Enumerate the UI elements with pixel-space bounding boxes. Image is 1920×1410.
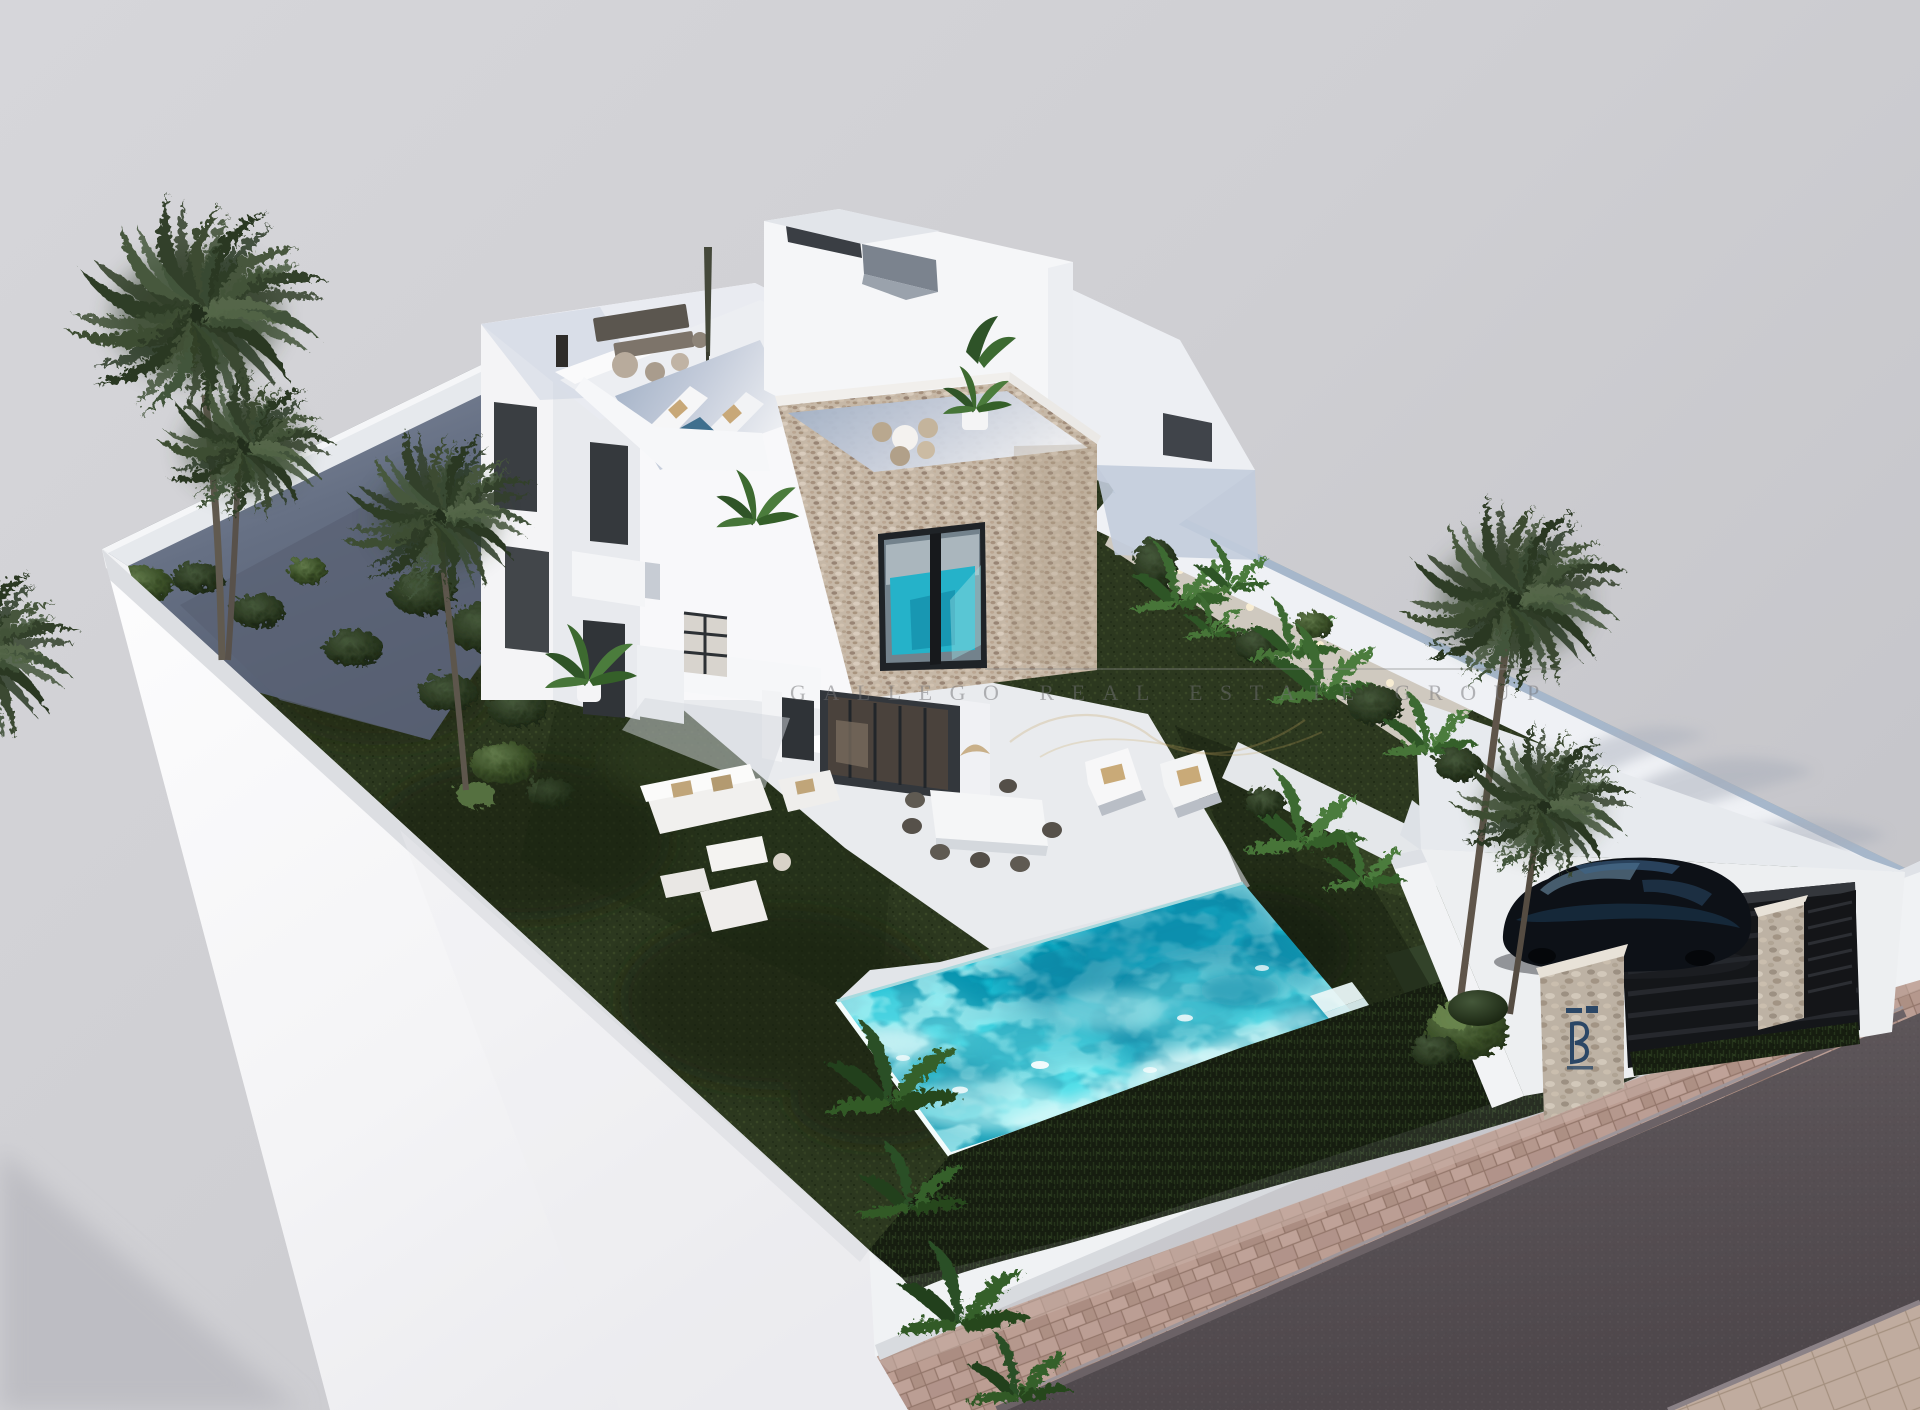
svg-text:GALLEGO REAL ESTATE GROUP: GALLEGO REAL ESTATE GROUP [790,680,1557,705]
